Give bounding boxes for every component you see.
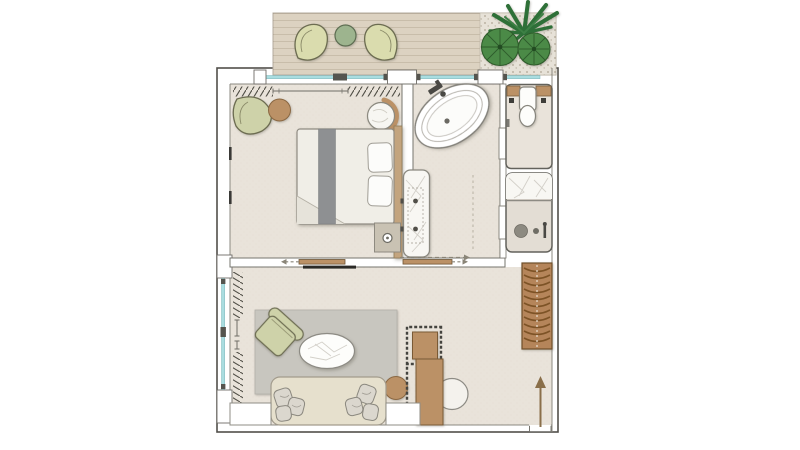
wall-niche-left xyxy=(230,403,271,425)
basin-dot xyxy=(413,199,418,204)
tv-panel xyxy=(303,266,356,269)
mullion-block xyxy=(333,74,347,81)
pillow xyxy=(367,176,392,207)
desk-stool xyxy=(413,332,438,359)
round-side-table xyxy=(269,99,291,121)
mullion xyxy=(221,384,225,389)
paper-holder xyxy=(507,119,510,127)
pillow xyxy=(368,143,393,173)
terrace-door-pier xyxy=(388,70,417,84)
shelf-accessory xyxy=(509,98,514,103)
sofa xyxy=(271,377,386,425)
curtain-left xyxy=(233,87,273,97)
shower-control xyxy=(533,228,539,234)
wall-niche-right xyxy=(386,403,420,425)
wood-shelf xyxy=(536,86,551,96)
terrace-door-pier xyxy=(478,70,503,84)
floor-plan-drawing xyxy=(0,0,800,450)
leaf-center xyxy=(498,45,503,50)
pocket-door-wc xyxy=(499,128,506,159)
wall-pier xyxy=(254,70,266,84)
round-side-table xyxy=(385,377,408,400)
mullion-block xyxy=(221,327,226,337)
mullion xyxy=(503,74,507,80)
wood-shelf xyxy=(507,86,520,96)
basin-dot xyxy=(413,227,418,232)
sliding-door-left xyxy=(299,260,345,265)
floor-plan-canvas xyxy=(0,0,800,450)
louvered-wardrobe xyxy=(522,263,552,349)
marble-vanity xyxy=(401,170,430,257)
terrace xyxy=(273,2,557,75)
sliding-door-right xyxy=(403,260,452,265)
oval-coffee-table xyxy=(300,334,355,369)
pocket-door-shower xyxy=(499,206,506,239)
shelf-accessory xyxy=(541,98,546,103)
shower-room xyxy=(506,173,552,252)
wall-strip-dark xyxy=(229,147,232,160)
wall-faucet xyxy=(401,227,404,232)
mullion xyxy=(417,74,421,80)
shower-valve xyxy=(544,224,547,238)
chair-cushion xyxy=(368,103,395,130)
wall-faucet xyxy=(401,199,404,204)
mullion xyxy=(474,74,478,80)
leaf-center xyxy=(532,47,536,51)
bed-runner xyxy=(319,129,336,224)
wc-room xyxy=(506,85,552,169)
window-curtain-upper xyxy=(233,272,243,318)
toilet xyxy=(520,87,537,127)
mullion xyxy=(384,74,388,80)
curtain-right xyxy=(348,87,400,97)
valve-knob xyxy=(543,222,547,226)
wall-strip-dark xyxy=(229,191,232,204)
tub-drain xyxy=(444,118,449,123)
button-dot xyxy=(386,237,389,240)
round-terrace-table xyxy=(335,25,356,46)
floor-drain xyxy=(515,225,528,238)
foot-bench xyxy=(375,223,401,252)
mullion xyxy=(221,279,225,284)
